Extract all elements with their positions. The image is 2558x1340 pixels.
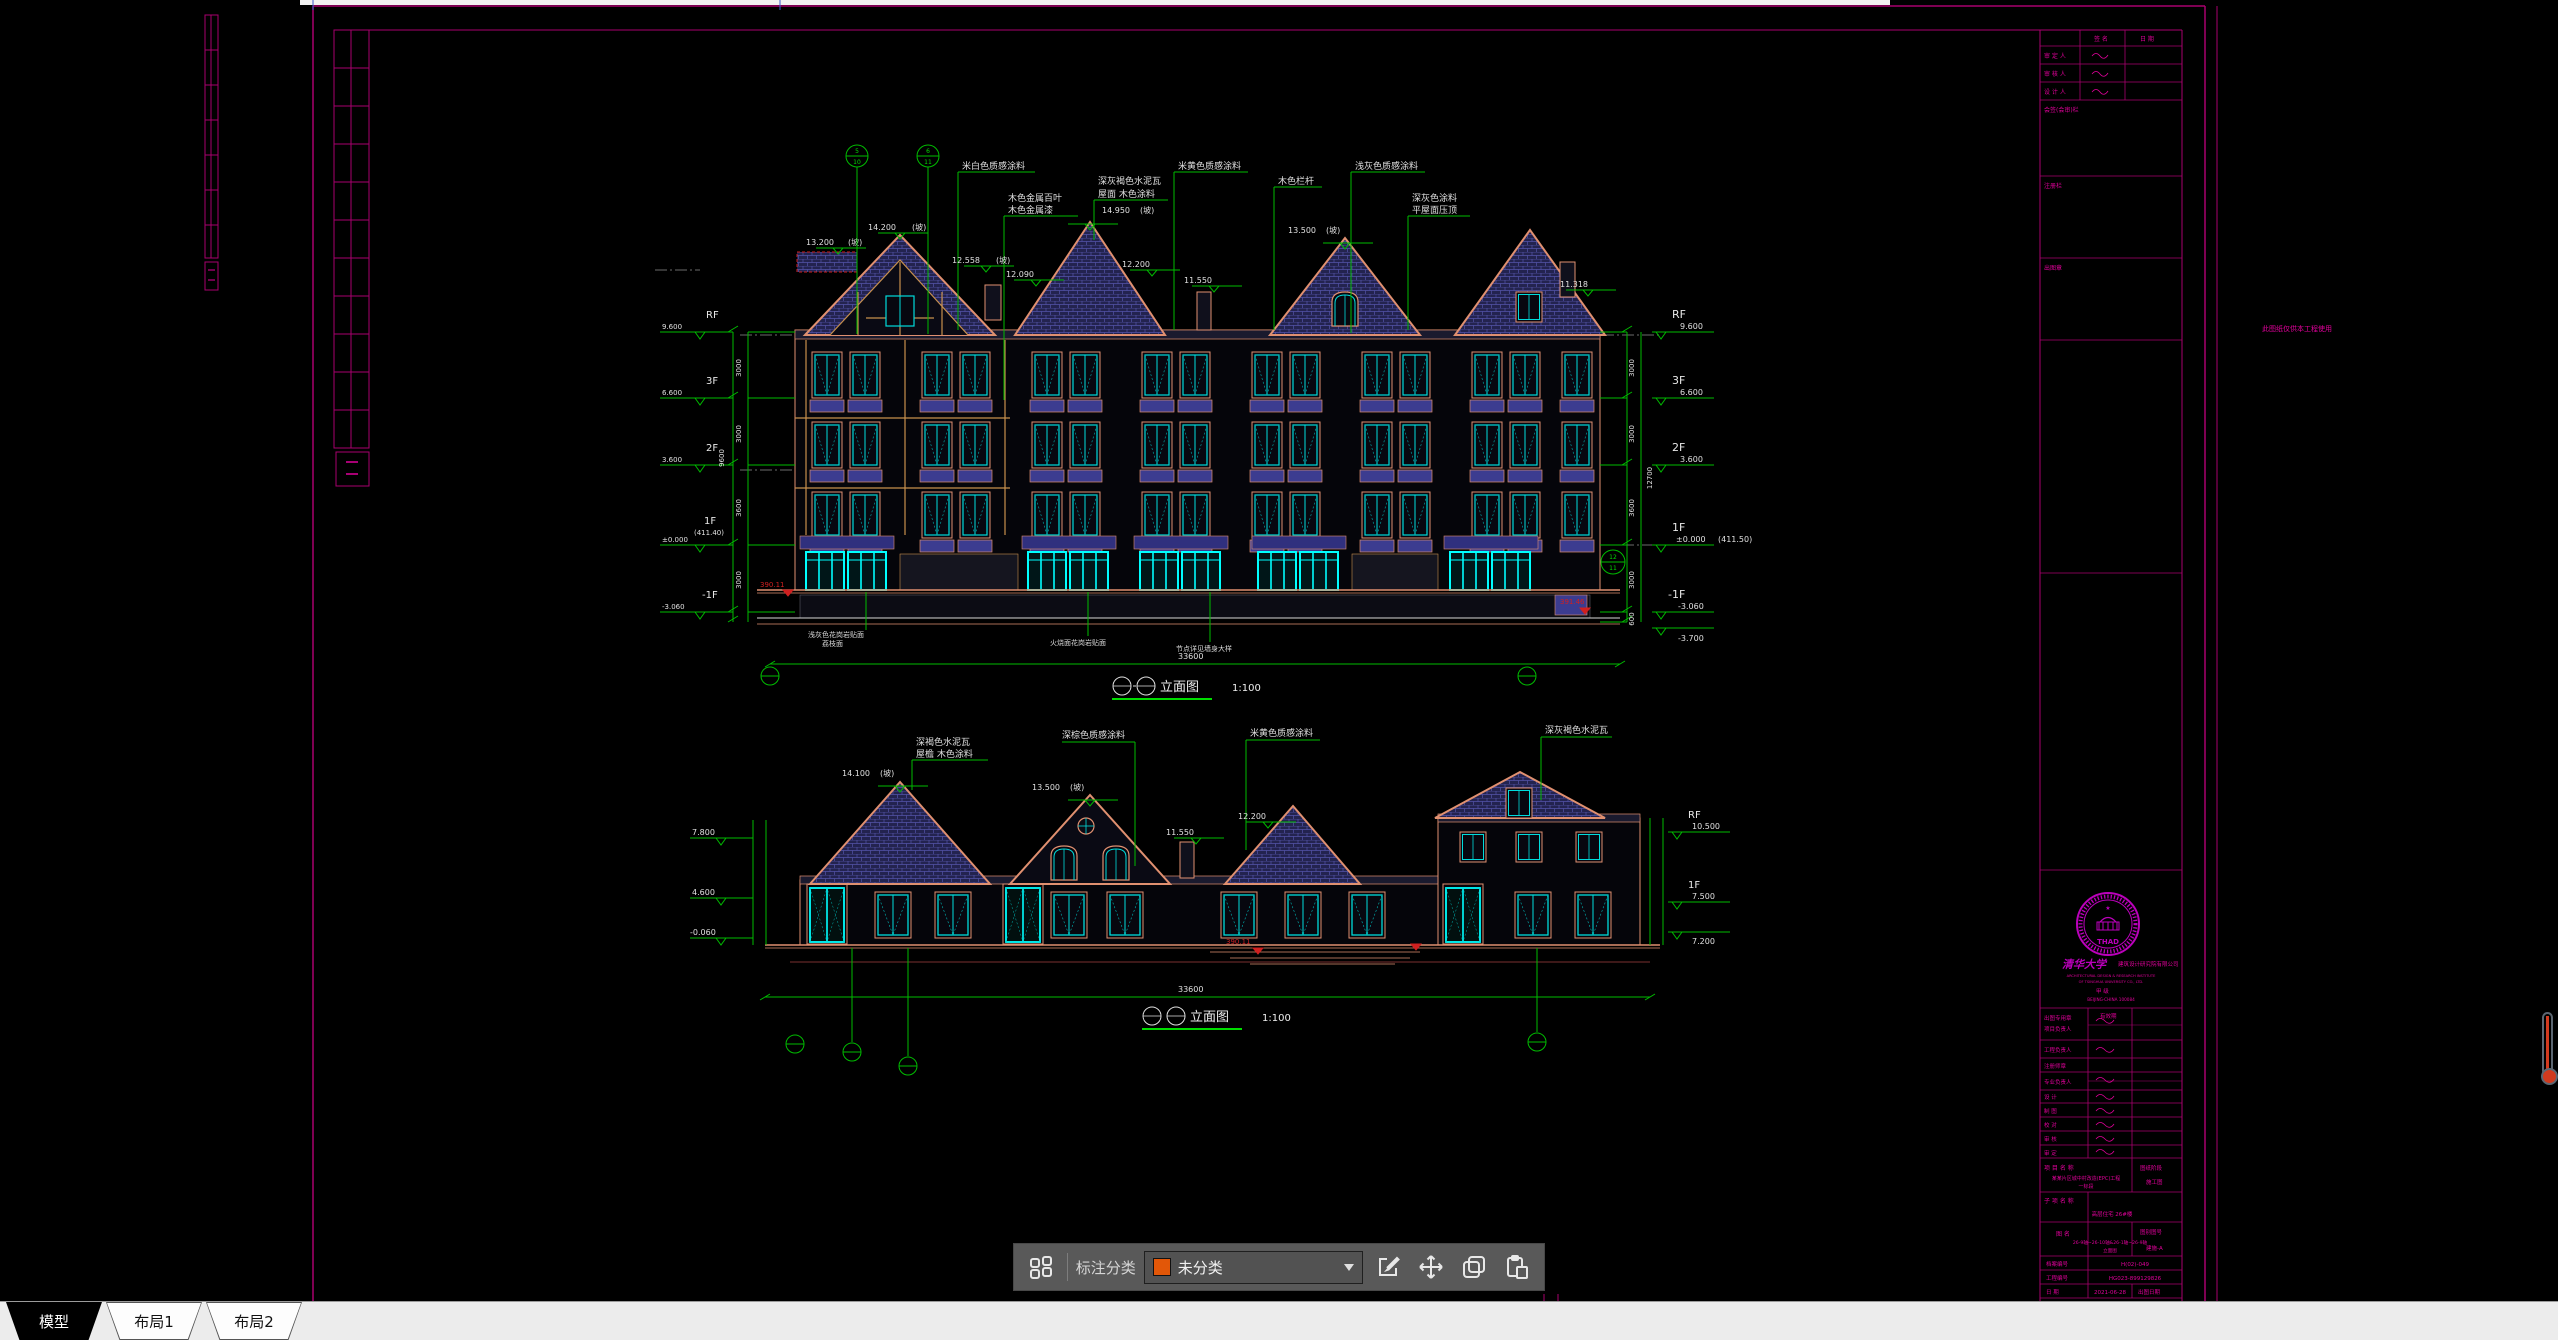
sign-header-date: 日 期 (2140, 35, 2154, 43)
elev-value: 14.200 (868, 223, 896, 232)
sheet-side-note: 此图纸仅供本工程使用 (2262, 324, 2332, 333)
category-color-swatch (1153, 1258, 1171, 1276)
level-chain-right-bottom: RF 10.500 1F 7.500 7.200 (1650, 810, 1730, 946)
left-revision-table (334, 30, 369, 486)
floor-elev: ±0.000 (662, 536, 688, 544)
drawing-name-label: 图 名 (2056, 1230, 2070, 1238)
floor-elev: 4.600 (692, 888, 715, 897)
floor-elev: 3.600 (1680, 455, 1703, 464)
section-label: 出图章 (2044, 264, 2062, 272)
personnel-label: 注册师章 (2044, 1062, 2067, 1070)
org-city: BEIJING·CHINA 100084 (2087, 997, 2135, 1002)
floor-elev: 9.600 (1680, 322, 1703, 331)
elev-suffix: (坡) (880, 768, 894, 778)
floor-elev: 7.800 (692, 828, 715, 837)
layout-tab-bar: 模型 布局1 布局2 (0, 1301, 2558, 1340)
dim-text: 3600 (1628, 499, 1636, 517)
org-cn: 清华大学 (2062, 958, 2108, 971)
project-value2: 一标段 (2078, 1183, 2093, 1190)
total-dim: 33600 (1178, 985, 1203, 994)
tab-model[interactable]: 模型 (6, 1302, 102, 1340)
axis-number: 5 (855, 148, 859, 155)
project-value: 某某片区城中村改造(EPC)工程 (2052, 1175, 2121, 1182)
seal-org-block: 清华大学 建筑设计研究院有限公司 ARCHITECTURAL DESIGN & … (2062, 958, 2179, 1002)
tab-label: 布局2 (234, 1311, 274, 1332)
subproject-value: 高层住宅 26#楼 (2092, 1210, 2133, 1218)
site-elev: 390.11 (1226, 938, 1251, 946)
org-en1: ARCHITECTURAL DESIGN & RESEARCH INSTITUT… (2067, 974, 2156, 978)
personnel-label: 专业负责人 (2044, 1078, 2072, 1086)
drawing-title-bottom: 33600 立面图 1:100 (760, 948, 1655, 1075)
floor-note: (411.40) (694, 529, 724, 537)
category-label: 标注分类 (1076, 1257, 1136, 1278)
tab-label: 模型 (39, 1311, 69, 1332)
annotation-text: 木色栏杆 (1278, 175, 1314, 187)
annotation-text: 屋檐 木色涂料 (916, 748, 973, 760)
elev-value: 12.200 (1238, 812, 1266, 821)
drawing-no-value: 建施-A (2146, 1244, 2163, 1252)
axis-number: 10 (853, 159, 861, 166)
floor-label: 1F (704, 516, 716, 527)
floor-label: 3F (706, 376, 718, 387)
elev-value: 14.100 (842, 769, 870, 778)
elev-suffix: (坡) (912, 222, 926, 232)
personnel-label: 制 图 (2044, 1107, 2057, 1115)
floor-elev: 10.500 (1692, 822, 1720, 831)
seal-abbr: THAD (2097, 938, 2119, 946)
elev-suffix: (坡) (996, 255, 1010, 265)
floor-label: RF (1672, 308, 1686, 321)
org2: 建筑设计研究院有限公司 (2118, 960, 2179, 968)
floor-levels-right: 3000 3000 3600 3000 600 12700 RF 9.600 3… (1600, 308, 1752, 643)
annotation-text: 深灰褐色水泥瓦 (1098, 175, 1161, 187)
annotation-text: 米黄色质感涂料 (1250, 727, 1313, 739)
elev-value: 11.550 (1184, 276, 1212, 285)
copy-button[interactable] (1456, 1249, 1491, 1285)
floor-elev: -3.060 (1678, 602, 1704, 611)
edit-annotation-button[interactable] (1371, 1249, 1406, 1285)
elev-value: 12.558 (952, 256, 980, 265)
annotation-text: 米白色质感涂料 (962, 160, 1025, 172)
annotation-text: 木色金属百叶 (1008, 192, 1062, 204)
personnel-label: 设 计 (2044, 1093, 2057, 1101)
floor-elev: 7.500 (1692, 892, 1715, 901)
elev-value: 13.200 (806, 238, 834, 247)
dim-text: 600 (1628, 612, 1636, 625)
cad-application-window: 此图纸仅供本工程使用 签 名 日 期 审 定 人 审 核 人 设 计 人 (0, 0, 2558, 1340)
dim-text: 3000 (735, 425, 743, 443)
signature-marks (2092, 54, 2108, 95)
design-institute-seal: ★ THAD (2077, 893, 2139, 955)
elev-value: 12.090 (1006, 270, 1034, 279)
tab-layout2[interactable]: 布局2 (206, 1302, 302, 1340)
axis-number: 11 (924, 159, 932, 166)
note-text: 荔枝面 (822, 639, 843, 648)
stamp-label: 出图专用章 (2044, 1014, 2072, 1022)
tab-layout1[interactable]: 布局1 (106, 1302, 202, 1340)
sign-header-name: 签 名 (2094, 35, 2108, 43)
date-value: 2021-06-28 (2094, 1290, 2126, 1296)
bottom-elevation-drawing: 390.11 深褐色水泥瓦 屋檐 木色涂料 深棕色质感涂料 米黄色质感涂料 深灰… (690, 724, 1730, 1075)
section-label: 注册栏 (2044, 182, 2062, 190)
annotation-text: 深棕色质感涂料 (1062, 729, 1125, 741)
tab-label: 布局1 (134, 1311, 174, 1332)
elev-suffix: (坡) (848, 237, 862, 247)
floor-elev: ±0.000 (1676, 535, 1706, 544)
date-label: 日 期 (2046, 1289, 2059, 1296)
axis-number: 6 (926, 148, 930, 155)
annotation-text: 米黄色质感涂料 (1178, 160, 1241, 172)
viewport-ticks (313, 0, 780, 10)
move-button[interactable] (1414, 1249, 1449, 1285)
project-label: 项 目 名 称 (2044, 1164, 2074, 1172)
stage-label: 图纸阶段 (2140, 1164, 2163, 1172)
archive-label: 档案编号 (2046, 1260, 2069, 1268)
annotation-text: 深灰褐色水泥瓦 (1545, 724, 1608, 736)
drawing-name-value2: 立面图 (2103, 1247, 2117, 1254)
elev-value: 11.318 (1560, 280, 1588, 289)
annotation-text: 屋面 木色涂料 (1098, 188, 1155, 200)
sign-row-label: 审 核 人 (2044, 70, 2066, 78)
dim-text: 3000 (1628, 571, 1636, 589)
floor-label: RF (1688, 810, 1701, 821)
ground-lines-bottom (765, 945, 1660, 964)
annotation-text: 木色金属漆 (1008, 204, 1053, 216)
floor-label: -1F (702, 590, 718, 601)
floor-label: RF (706, 310, 719, 321)
dim-text: 9600 (718, 449, 726, 467)
personnel-signatures (2096, 1019, 2114, 1155)
floor-elev: -3.700 (1678, 634, 1704, 643)
annotation-toolbar: 标注分类 未分类 (1013, 1243, 1545, 1291)
total-dim: 33600 (1178, 652, 1203, 661)
dim-text: 3600 (735, 499, 743, 517)
fold-mark-strip (205, 15, 218, 290)
floor-elev: 3.600 (662, 456, 682, 464)
annotation-text: 深灰色涂料 (1412, 192, 1457, 204)
date-right-label: 出图日期 (2138, 1288, 2161, 1296)
ground-lines (757, 590, 1620, 624)
window-grid (810, 352, 1594, 552)
elev-value: 14.950 (1102, 206, 1130, 215)
axis-number: 12 (1609, 554, 1617, 561)
org-en2: OF TSINGHUA UNIVERSITY CO., LTD. (2079, 980, 2144, 984)
elev-value: 13.500 (1032, 783, 1060, 792)
floor-levels-left: 3000 3000 3600 3000 9600 9.600 RF 6.600 … (660, 310, 795, 622)
scroll-line (2546, 1016, 2549, 1074)
personnel-label: 工程负责人 (2044, 1046, 2072, 1054)
toolbar-divider (1067, 1253, 1068, 1281)
personnel-label: 审 定 (2044, 1149, 2057, 1157)
chevron-down-icon (1344, 1264, 1354, 1271)
dim-text: 12700 (1646, 467, 1654, 489)
personnel-label: 项目负责人 (2044, 1025, 2072, 1033)
category-dropdown-value: 未分类 (1178, 1257, 1337, 1278)
drawing-scale: 1:100 (1262, 1013, 1291, 1024)
floor-elev: 6.600 (662, 389, 682, 397)
elev-value: 11.550 (1166, 828, 1194, 837)
axis-number: 11 (1609, 565, 1617, 572)
annotation-text: 平屋面压顶 (1412, 205, 1457, 216)
cad-canvas[interactable]: 此图纸仅供本工程使用 签 名 日 期 审 定 人 审 核 人 设 计 人 (0, 0, 2558, 1302)
drawing-title-text: 立面图 (1160, 680, 1199, 695)
elev-suffix: (坡) (1070, 782, 1084, 792)
projectno-label: 工程编号 (2046, 1274, 2069, 1282)
dim-text: 3000 (1628, 425, 1636, 443)
drawing-no-label: 图别图号 (2140, 1228, 2163, 1236)
drawing-name-value: 26-9轴~26-10轴&26-1轴~26-9轴 (2073, 1239, 2148, 1246)
subproject-label: 子 项 名 称 (2044, 1197, 2074, 1205)
title-block: 签 名 日 期 审 定 人 审 核 人 设 计 人 会签(会审)栏 注册栏 出图… (2040, 30, 2182, 1298)
floor-elev: -3.060 (662, 603, 685, 611)
floor-elev: 7.200 (1692, 937, 1715, 946)
site-elev-left: 390.11 (760, 581, 785, 589)
section-label: 会签(会审)栏 (2044, 106, 2079, 114)
elev-suffix: (坡) (1140, 205, 1154, 215)
floor-elev: -0.060 (690, 928, 716, 937)
dim-text: 3000 (1628, 359, 1636, 377)
floor-elev: 9.600 (662, 323, 682, 331)
org-grade: 甲 级 (2096, 987, 2109, 995)
elev-value: 12.200 (1122, 260, 1150, 269)
annotation-text: 深褐色水泥瓦 (916, 736, 970, 748)
projectno-value: HG023-899129826 (2109, 1276, 2162, 1282)
floor-elev: 6.600 (1680, 388, 1703, 397)
dim-text: 3000 (735, 359, 743, 377)
drawing-scale: 1:100 (1232, 683, 1261, 694)
category-dropdown[interactable]: 未分类 (1144, 1251, 1363, 1284)
floor-label: 2F (1672, 441, 1685, 454)
floor-label: 2F (706, 443, 718, 454)
stage-value: 施工图 (2146, 1178, 2163, 1186)
level-chain-left-bottom: 7.800 4.600 -0.060 (690, 820, 766, 945)
drawing-title-top: 33600 立面图 1:100 (761, 652, 1625, 699)
note-text: 火烧面花岗岩贴面 (1050, 638, 1106, 647)
dim-text: 3000 (735, 571, 743, 589)
elev-suffix: (坡) (1326, 225, 1340, 235)
elev-value: 13.500 (1288, 226, 1316, 235)
personnel-label: 校 对 (2044, 1121, 2057, 1129)
archive-value: H(02)-049 (2121, 1262, 2149, 1268)
floor-label: 1F (1688, 880, 1700, 891)
sheet-frame (313, 6, 2217, 1302)
paste-button[interactable] (1499, 1249, 1534, 1285)
note-text: 浅灰色花岗岩贴面 (808, 630, 864, 639)
scroll-thumb[interactable] (2541, 1068, 2558, 1085)
floor-label: -1F (1668, 588, 1685, 601)
floor-note: (411.50) (1718, 535, 1752, 544)
sign-row-label: 设 计 人 (2044, 88, 2066, 96)
top-elevation-drawing: 390.11 391.46 米白色质感涂料 木色金属百叶 木色金属 (655, 145, 1752, 699)
seal-star: ★ (2105, 905, 2110, 912)
blocks-grid-icon[interactable] (1024, 1249, 1059, 1285)
floor-label: 1F (1672, 521, 1685, 534)
drawing-title-text: 立面图 (1190, 1010, 1229, 1025)
sign-row-label: 审 定 人 (2044, 52, 2066, 60)
personnel-label: 审 核 (2044, 1135, 2057, 1143)
floor-label: 3F (1672, 374, 1685, 387)
site-elev-right: 391.46 (1560, 598, 1585, 606)
annotation-text: 浅灰色质感涂料 (1355, 160, 1418, 172)
right-scroll-indicator[interactable] (2541, 1012, 2555, 1094)
